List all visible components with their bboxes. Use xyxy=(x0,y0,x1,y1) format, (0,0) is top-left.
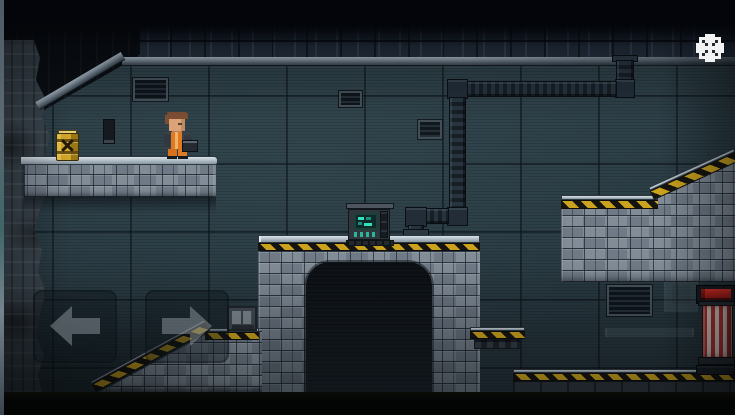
pylon-indicator xyxy=(701,289,731,300)
player-hair xyxy=(167,112,188,119)
pipe-elbow xyxy=(447,207,468,226)
pylon-plinth xyxy=(696,365,735,375)
gear-icon xyxy=(696,34,724,62)
wall-poster xyxy=(103,119,115,144)
terminal-buttons xyxy=(354,232,378,237)
hatch-divider xyxy=(241,311,243,324)
barrel-rib xyxy=(57,151,78,154)
computer-terminal xyxy=(346,202,394,246)
hatch-lip xyxy=(232,325,254,329)
pylon-base xyxy=(698,357,735,365)
left-edge-strip xyxy=(0,0,4,415)
player-shoe xyxy=(167,156,177,159)
wall-vent-right xyxy=(607,285,652,316)
platform-shadow xyxy=(24,197,216,213)
player-shoe xyxy=(178,156,188,159)
screen-pixels xyxy=(358,217,364,220)
pipe-segment-horizontal xyxy=(466,81,617,97)
screen-pixels xyxy=(358,222,362,225)
player-arm-left xyxy=(164,134,170,147)
hazard-barrel xyxy=(56,130,79,161)
screen-pixels xyxy=(366,217,371,220)
pipe-elbow xyxy=(447,79,468,99)
metal-beam-horizontal xyxy=(122,57,735,66)
bottom-black-band xyxy=(0,392,735,415)
right-platform-hazard-stripe xyxy=(561,200,658,209)
arrow-right-icon xyxy=(162,306,212,346)
ledge-hazard-stripe xyxy=(470,331,525,339)
pipe-elbow xyxy=(405,207,427,227)
player-vest-stripe xyxy=(175,132,178,149)
move-left-button[interactable] xyxy=(33,290,117,363)
top-black-band xyxy=(0,0,735,46)
hatch-box xyxy=(227,306,257,331)
player-face-shade xyxy=(181,119,185,131)
pipe-elbow xyxy=(615,79,635,98)
wall-vent-small-1 xyxy=(339,91,362,107)
pylon-column xyxy=(702,305,733,358)
pipe-segment-vertical-main xyxy=(449,97,466,209)
arrow-left-icon xyxy=(50,306,100,346)
wall-vent-small-2 xyxy=(418,120,442,139)
player-carried-case xyxy=(182,140,198,152)
ledge-bracket xyxy=(474,339,521,349)
settings-button[interactable] xyxy=(694,33,726,63)
screen-pixels xyxy=(364,223,372,226)
ghost-rail xyxy=(605,328,694,337)
ghost-block xyxy=(664,277,698,312)
upper-left-platform xyxy=(24,163,216,197)
move-right-button[interactable] xyxy=(145,290,229,363)
game-viewport xyxy=(0,0,735,415)
player-character xyxy=(160,111,198,159)
wall-vent-large xyxy=(133,78,168,101)
terminal-screen xyxy=(354,213,378,230)
pillar-edge-light xyxy=(478,251,480,393)
terminal-base xyxy=(346,240,394,246)
terminal-side-slot xyxy=(380,211,388,238)
pipe-segment-jog xyxy=(425,208,449,224)
player-eye xyxy=(178,123,182,125)
striped-pylon xyxy=(696,285,735,376)
tunnel-arch xyxy=(306,262,432,393)
